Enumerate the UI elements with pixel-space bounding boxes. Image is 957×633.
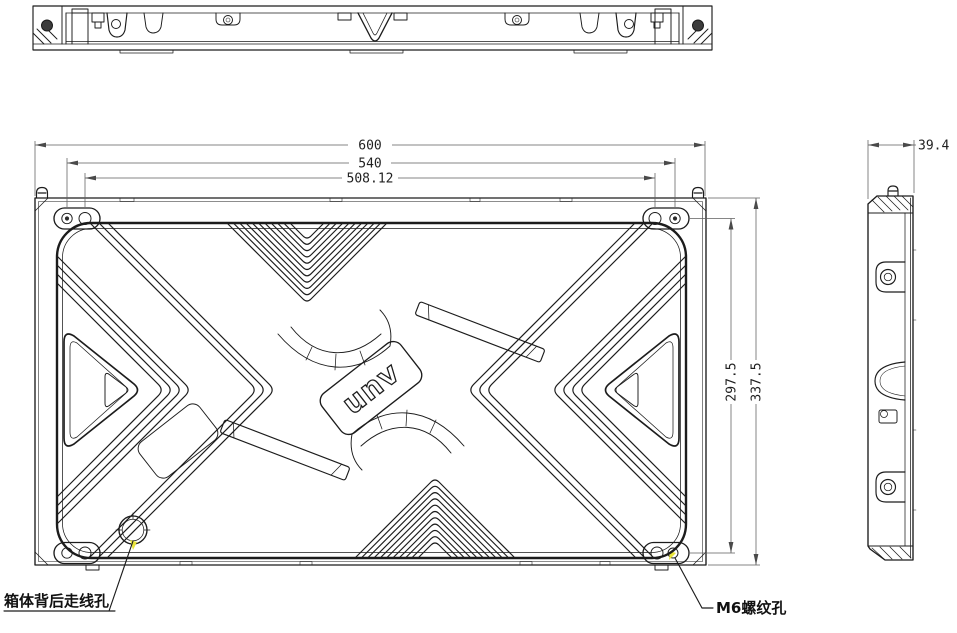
left-shallow-notch <box>144 13 163 33</box>
bar-bevels <box>228 423 341 478</box>
side-eyelet-upper <box>876 262 905 292</box>
triangle-outer <box>606 334 680 446</box>
dimension-arrowhead <box>868 143 879 148</box>
dimension-arrowhead <box>903 143 914 148</box>
mid-left-latch-hole <box>224 16 233 25</box>
top-fan-rib <box>278 310 391 370</box>
dimension-arrowhead <box>694 143 705 148</box>
chevron-rib <box>406 530 463 557</box>
x-band-rib <box>573 274 686 506</box>
mid-right-latch <box>505 13 529 25</box>
chevron-rib <box>381 505 489 557</box>
fan-spokes <box>377 410 436 433</box>
slot-pin <box>673 216 677 220</box>
side-u-notch <box>875 362 905 400</box>
right-bracket <box>651 13 663 28</box>
x-band-rib <box>108 224 272 557</box>
side-inner-walls <box>905 198 911 558</box>
right-screw <box>693 20 704 31</box>
dim-depth: 39.4 <box>918 139 949 154</box>
left-triangle-rib <box>64 334 138 446</box>
center-tab-left <box>338 13 351 20</box>
bottom-fan-rib <box>351 410 464 470</box>
dimension-arrowhead <box>67 161 78 166</box>
drawing-canvas: unv <box>0 0 957 633</box>
dimension-arrowhead <box>85 176 96 181</box>
side-bottom-hatch <box>872 547 911 559</box>
dimension-arrowhead <box>35 143 46 148</box>
right-latch-hole <box>625 20 634 29</box>
chevron-rib <box>247 224 367 282</box>
fan-arcs <box>278 310 391 367</box>
mount-slot-bottom-left <box>54 543 100 564</box>
eyelet-hole <box>884 273 892 281</box>
top-right-pin <box>693 188 704 199</box>
triangle-outer <box>64 334 138 446</box>
side-u-notch-inner <box>880 366 905 396</box>
chevron-rib <box>413 537 458 557</box>
x-band-rib <box>582 283 686 497</box>
eyelet-ring <box>881 480 896 495</box>
bar-rib-lower <box>220 419 350 480</box>
right-triangle-rib <box>606 334 680 446</box>
top-profile-view <box>33 6 712 53</box>
dimension-arrowhead <box>729 542 734 553</box>
label-plate <box>135 400 222 481</box>
side-top-pin <box>888 186 898 196</box>
slot-pin <box>65 216 69 220</box>
chevron-rib <box>234 224 379 295</box>
mid-right-latch-pin <box>515 18 519 22</box>
cable-hole-label: 箱体背后走线孔 <box>4 592 109 610</box>
chevron-rib <box>253 224 361 276</box>
latch-pin <box>881 411 888 418</box>
unv-logo: unv <box>336 355 407 421</box>
side-top-hatch <box>872 196 913 212</box>
left-latch-hole <box>112 20 121 29</box>
top-left-pin <box>37 188 48 199</box>
eyelet-ring <box>881 270 896 285</box>
dim-width-mount: 540 <box>358 157 381 172</box>
bottom-chevron-ribs <box>356 480 514 557</box>
fan-spokes <box>306 347 365 370</box>
x-band-rib <box>489 224 653 557</box>
dimension-arrowhead <box>729 219 734 230</box>
x-band-rib <box>99 224 263 557</box>
dimension-arrowhead <box>644 176 655 181</box>
dimension-arrowhead <box>664 161 675 166</box>
x-band-rib <box>57 283 161 497</box>
x-band-rib <box>57 256 188 524</box>
dim-width-total: 600 <box>358 139 381 154</box>
left-bracket <box>92 13 104 28</box>
chevron-rib <box>278 224 335 251</box>
right-shallow-notch <box>580 13 599 33</box>
left-divider-block <box>72 9 88 44</box>
chevron-rib <box>375 499 495 557</box>
center-v-notch-inner <box>363 13 387 35</box>
x-band-rib <box>555 256 686 524</box>
hole-outer <box>119 516 147 544</box>
x-band-rib <box>90 224 254 557</box>
mid-right-latch-hole <box>513 16 522 25</box>
label-plate-outline <box>135 400 222 481</box>
mid-left-latch <box>216 13 240 25</box>
rear-panel-view: unv <box>35 188 706 571</box>
eyelet-hole <box>884 483 892 491</box>
dim-height-total: 337.5 <box>750 362 765 401</box>
dim-height-mount: 297.5 <box>725 362 740 401</box>
x-band-rib <box>480 224 644 557</box>
dimension-arrows <box>35 143 914 565</box>
cabinet-technical-drawing: unv <box>0 0 957 633</box>
dim-width-inner: 508.12 <box>347 172 394 187</box>
chevron-rib <box>362 486 507 557</box>
slot-outline <box>643 543 689 564</box>
dimensions: 600 540 508.12 297.5 337.5 39.4 <box>35 139 949 566</box>
chevron-rib <box>285 224 330 244</box>
center-tab-right <box>394 13 407 20</box>
bottom-tabs <box>86 565 668 570</box>
side-latch-bracket <box>879 410 897 423</box>
top-chevron-ribs <box>228 224 386 301</box>
left-screw <box>42 20 53 31</box>
mid-left-latch-pin <box>226 18 230 22</box>
center-v-notch <box>358 13 392 41</box>
dimension-lines <box>35 145 916 565</box>
mount-slot-bottom-right <box>643 543 689 564</box>
dimension-arrowhead <box>754 554 759 565</box>
left-u-notch <box>107 13 127 37</box>
bar-bevels <box>423 305 536 360</box>
side-eyelet-lower <box>876 472 905 502</box>
side-profile-view <box>868 186 916 560</box>
extension-lines <box>35 140 914 565</box>
slot-outline <box>54 543 100 564</box>
m6-hole-label: M6螺纹孔 <box>716 599 786 617</box>
top-view-outline <box>33 6 712 50</box>
x-band-rib <box>471 224 635 557</box>
dimension-arrowhead <box>754 198 759 209</box>
bar-outline <box>220 419 350 480</box>
